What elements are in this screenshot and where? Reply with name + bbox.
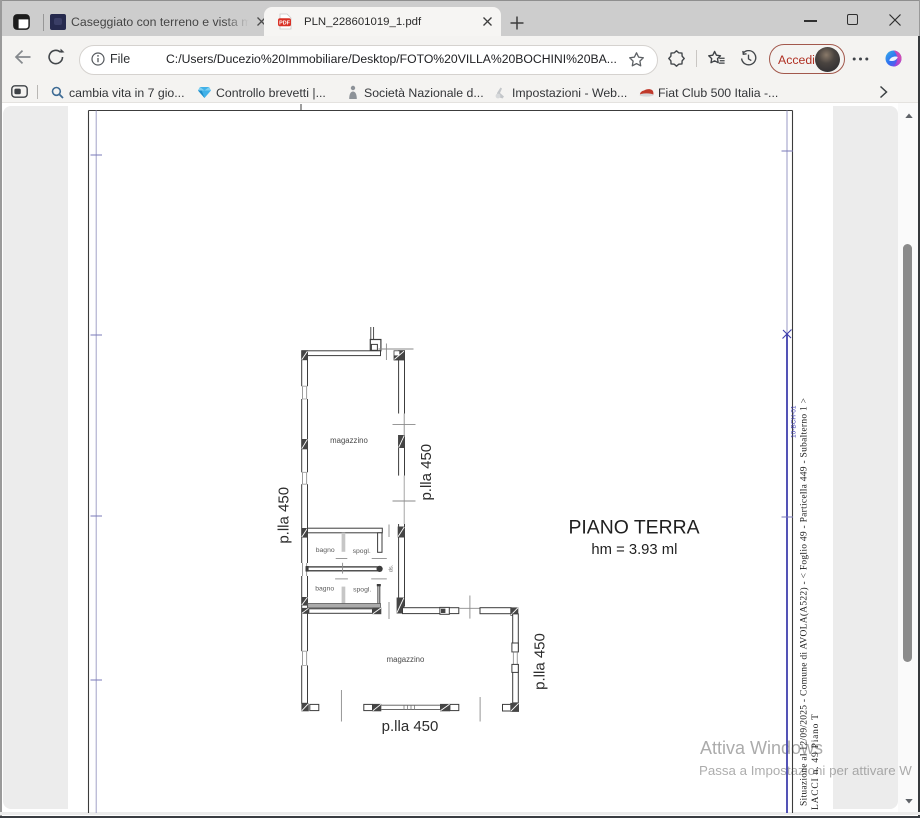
svg-text:Situazione al 12/09/2025 - Com: Situazione al 12/09/2025 - Comune di AVO… bbox=[799, 398, 810, 806]
svg-text:spogl.: spogl. bbox=[353, 548, 371, 555]
svg-text:bagno: bagno bbox=[315, 586, 334, 593]
svg-text:magazzino: magazzino bbox=[330, 436, 368, 445]
svg-text:spogl.: spogl. bbox=[353, 586, 371, 593]
svg-text:p.lla 450: p.lla 450 bbox=[418, 444, 435, 501]
svg-text:bagno: bagno bbox=[316, 547, 335, 554]
svg-text:PIANO TERRA: PIANO TERRA bbox=[568, 517, 699, 539]
svg-text:p.lla 450: p.lla 450 bbox=[382, 718, 439, 735]
svg-text:ds.: ds. bbox=[389, 564, 395, 572]
svg-text:hm = 3.93 ml: hm = 3.93 ml bbox=[591, 542, 677, 558]
svg-text:magazzino: magazzino bbox=[387, 655, 425, 664]
svg-text:10-BCH-01: 10-BCH-01 bbox=[791, 405, 798, 438]
svg-text:LACCI n. 49 Piano T: LACCI n. 49 Piano T bbox=[811, 714, 821, 810]
svg-text:p.lla 450: p.lla 450 bbox=[532, 633, 549, 690]
svg-text:p.lla 450: p.lla 450 bbox=[276, 487, 293, 544]
